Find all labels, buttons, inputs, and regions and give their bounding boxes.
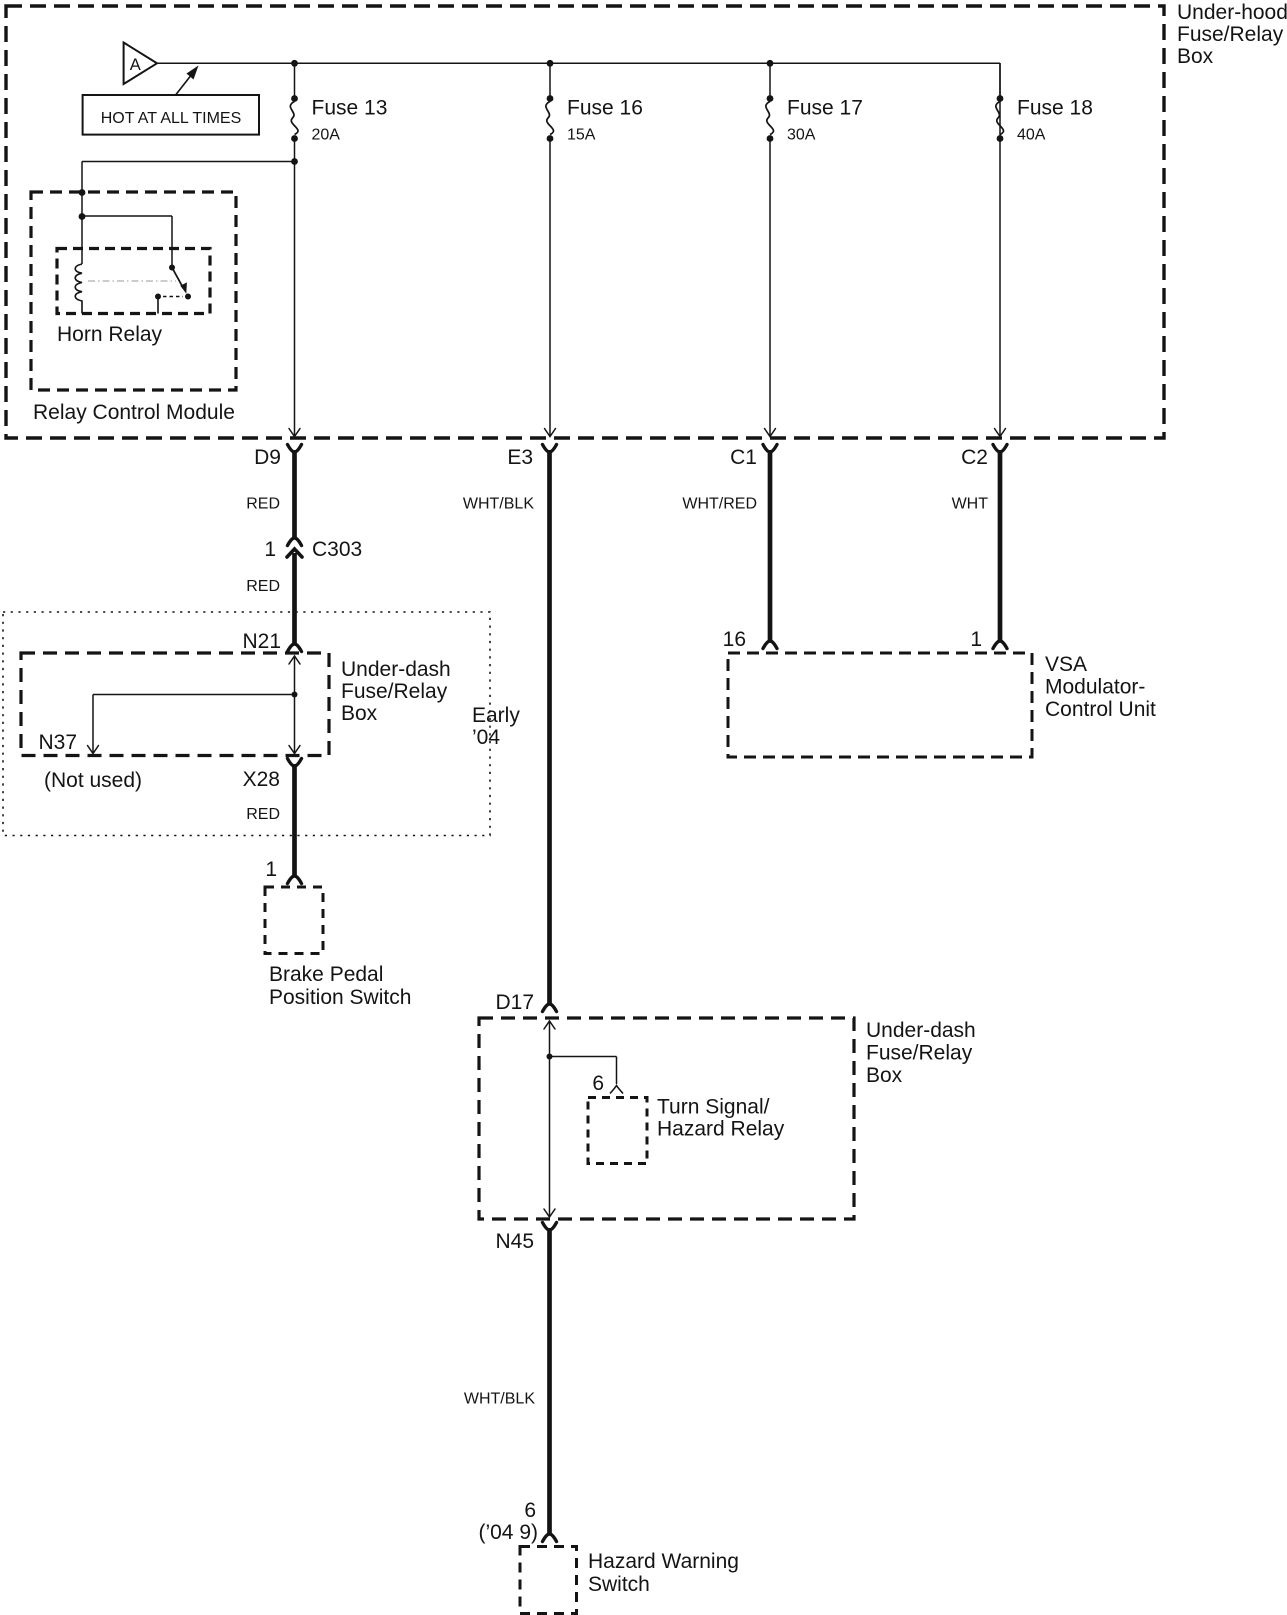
svg-text:VSA: VSA — [1045, 653, 1087, 676]
svg-text:Fuse 17: Fuse 17 — [787, 97, 863, 120]
svg-text:6: 6 — [524, 1499, 536, 1522]
svg-text:Switch: Switch — [588, 1573, 650, 1596]
svg-text:N45: N45 — [495, 1230, 534, 1253]
svg-text:E3: E3 — [507, 446, 533, 469]
svg-text:Fuse/Relay: Fuse/Relay — [1177, 23, 1284, 46]
svg-text:Fuse/Relay: Fuse/Relay — [866, 1042, 973, 1065]
svg-text:C303: C303 — [312, 538, 362, 561]
svg-text:RED: RED — [246, 806, 280, 823]
svg-text:Position Switch: Position Switch — [269, 986, 411, 1009]
svg-text:A: A — [130, 56, 141, 74]
svg-text:’04: ’04 — [472, 726, 500, 749]
svg-text:Modulator-: Modulator- — [1045, 676, 1145, 699]
svg-text:20A: 20A — [312, 127, 341, 144]
svg-text:Under-dash: Under-dash — [341, 658, 451, 681]
svg-text:1: 1 — [970, 628, 982, 651]
svg-text:Under-hood: Under-hood — [1177, 1, 1287, 24]
svg-text:RED: RED — [246, 578, 280, 595]
svg-text:HOT AT ALL TIMES: HOT AT ALL TIMES — [101, 110, 242, 127]
svg-text:Fuse 18: Fuse 18 — [1017, 97, 1093, 120]
svg-text:(Not used): (Not used) — [44, 769, 142, 792]
svg-text:D9: D9 — [254, 446, 281, 469]
svg-text:WHT/BLK: WHT/BLK — [463, 496, 534, 513]
svg-text:C1: C1 — [730, 446, 757, 469]
svg-text:Box: Box — [1177, 45, 1214, 68]
svg-text:15A: 15A — [567, 127, 596, 144]
svg-text:6: 6 — [592, 1072, 604, 1095]
svg-text:30A: 30A — [787, 127, 816, 144]
svg-text:C2: C2 — [961, 446, 988, 469]
svg-text:WHT: WHT — [952, 496, 989, 513]
svg-text:Fuse 16: Fuse 16 — [567, 97, 643, 120]
svg-text:Turn Signal/: Turn Signal/ — [657, 1096, 770, 1119]
svg-text:1: 1 — [264, 538, 276, 561]
svg-text:Brake Pedal: Brake Pedal — [269, 963, 383, 986]
svg-text:Hazard Warning: Hazard Warning — [588, 1550, 739, 1573]
svg-text:Box: Box — [341, 702, 378, 725]
svg-text:RED: RED — [246, 496, 280, 513]
svg-text:N21: N21 — [242, 630, 281, 653]
svg-text:Control Unit: Control Unit — [1045, 698, 1156, 721]
svg-text:Box: Box — [866, 1064, 903, 1087]
svg-text:X28: X28 — [243, 768, 280, 791]
svg-text:Hazard Relay: Hazard Relay — [657, 1118, 785, 1141]
svg-text:WHT/BLK: WHT/BLK — [464, 1391, 535, 1408]
svg-text:Under-dash: Under-dash — [866, 1019, 976, 1042]
svg-text:(’04 9): (’04 9) — [478, 1521, 538, 1544]
svg-text:WHT/RED: WHT/RED — [682, 496, 757, 513]
svg-text:1: 1 — [265, 858, 277, 881]
svg-text:Relay Control Module: Relay Control Module — [33, 401, 235, 424]
svg-text:16: 16 — [723, 628, 746, 651]
svg-text:Early: Early — [472, 704, 520, 727]
svg-text:D17: D17 — [495, 991, 534, 1014]
svg-text:40A: 40A — [1017, 127, 1046, 144]
svg-text:Horn Relay: Horn Relay — [57, 323, 163, 346]
svg-text:N37: N37 — [38, 731, 77, 754]
svg-text:Fuse 13: Fuse 13 — [312, 97, 388, 120]
svg-text:Fuse/Relay: Fuse/Relay — [341, 680, 448, 703]
